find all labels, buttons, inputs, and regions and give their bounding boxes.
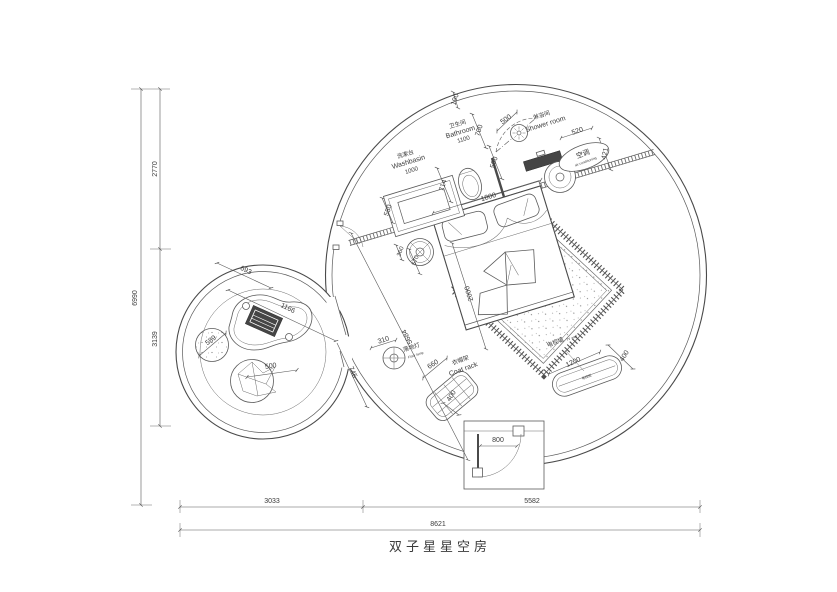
floor-lamp [383,347,405,369]
floor-plan-page: { "title": "双子星星空房", "colors": { "line":… [0,0,837,592]
dim-2770: 2770 [152,161,159,177]
dim-3033: 3033 [264,498,280,505]
drawing-title: 双子星星空房 [389,539,491,555]
cup-icon [286,334,293,341]
cup-icon [243,303,250,310]
dim-8621: 8621 [430,521,446,528]
dim-800: 800 [492,437,504,444]
dim-3139: 3139 [152,331,159,347]
dim-6990: 6990 [132,290,139,306]
dim-5582: 5582 [524,498,540,505]
entry-vestibule [464,421,544,489]
floor-plan-drawing: 洗漱台 Washbasin 1000 卫生间 Bathroom 1100 淋浴间… [0,0,837,592]
